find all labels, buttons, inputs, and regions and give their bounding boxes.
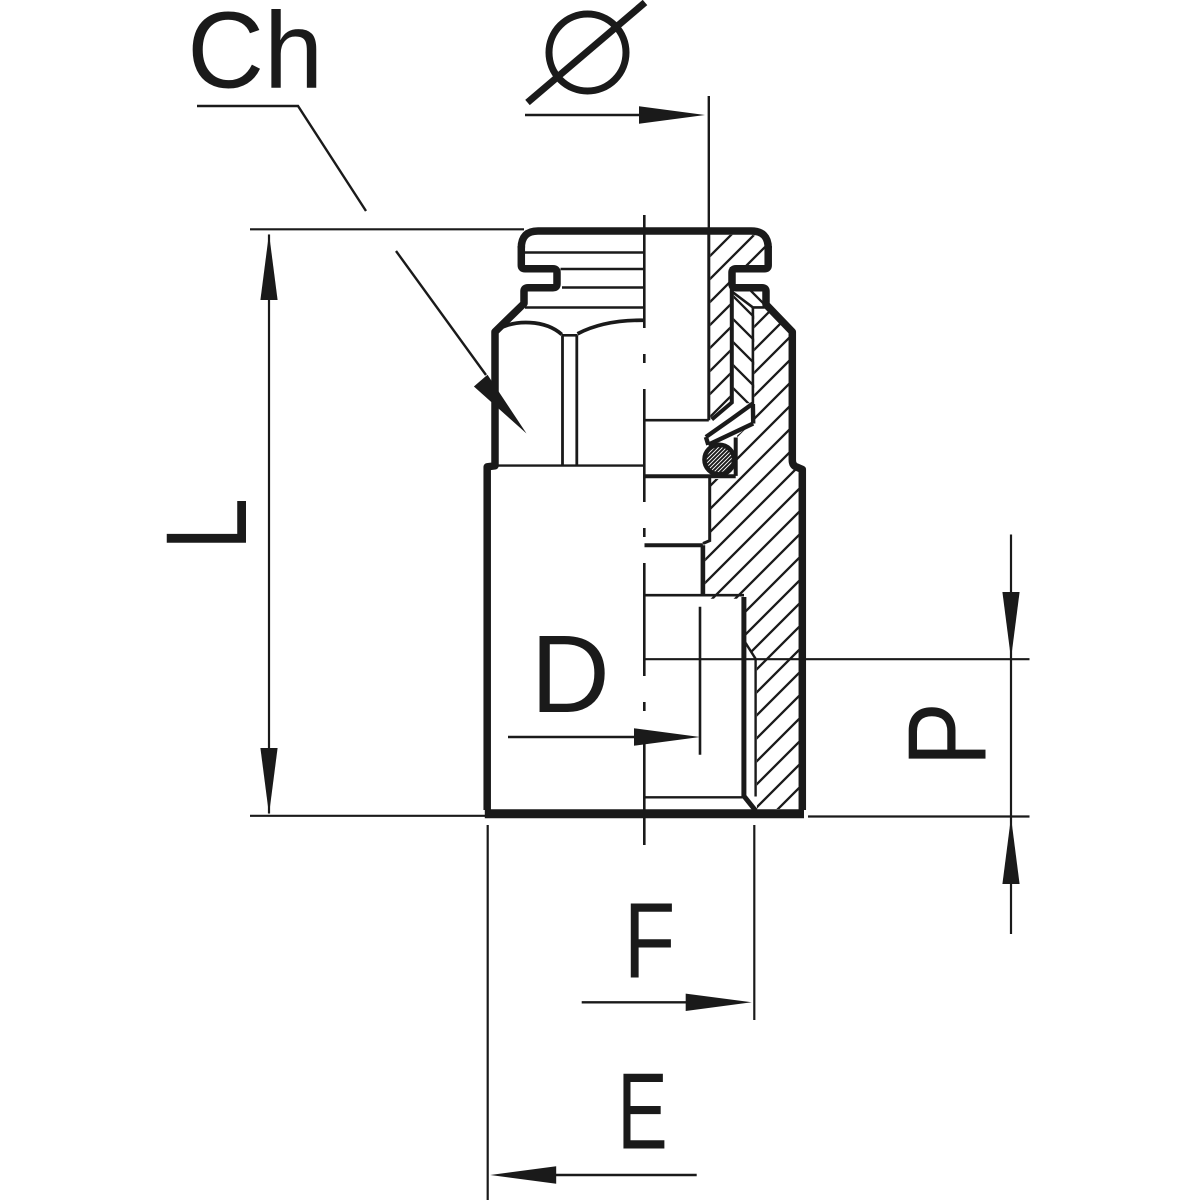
svg-text:D: D: [531, 613, 610, 736]
svg-text:P: P: [886, 702, 1010, 766]
svg-text:F: F: [624, 881, 675, 1001]
svg-text:Ch: Ch: [187, 0, 323, 112]
svg-text:L: L: [143, 498, 271, 551]
svg-text:E: E: [617, 1051, 667, 1172]
